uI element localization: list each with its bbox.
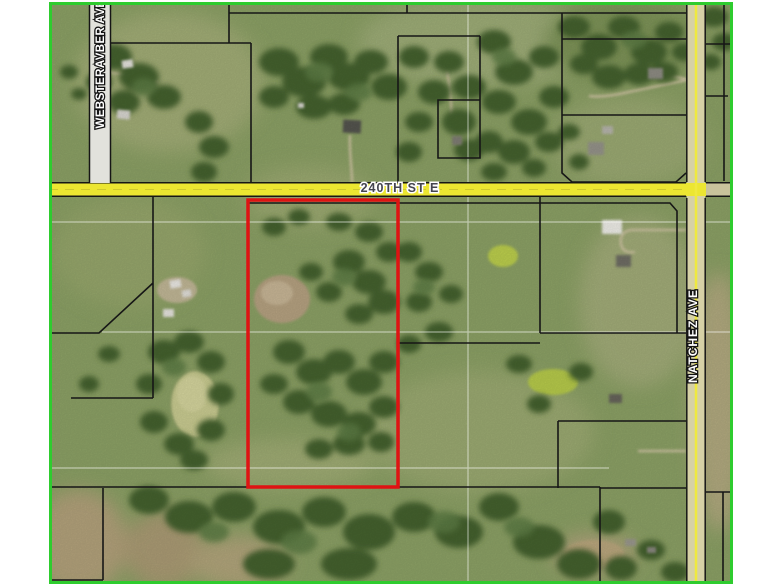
road-label-240th-st-e: 240TH ST E xyxy=(361,181,440,195)
aerial-map[interactable]: 240TH ST E WEBSTERAVBER AVE NATCHEZ AVE xyxy=(49,2,733,584)
road-240th-st-east-segment xyxy=(706,183,733,196)
page: 240TH ST E WEBSTERAVBER AVE NATCHEZ AVE xyxy=(0,0,781,586)
aerial-imagery xyxy=(49,2,733,584)
road-label-webster-ave: WEBSTERAVBER AVE xyxy=(95,2,107,128)
road-label-natchez-ave: NATCHEZ AVE xyxy=(686,289,700,383)
